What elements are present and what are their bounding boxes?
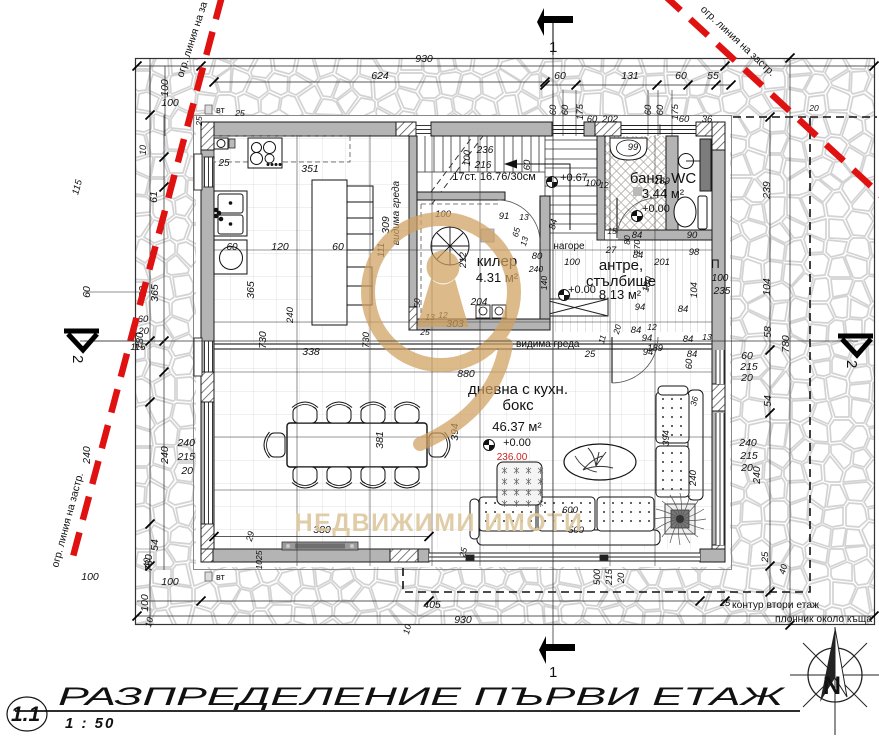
svg-text:240: 240 xyxy=(751,466,763,485)
svg-text:60: 60 xyxy=(643,104,654,115)
svg-text:60: 60 xyxy=(522,159,533,170)
svg-text:2: 2 xyxy=(843,360,860,368)
svg-text:17ст. 16.76/30см: 17ст. 16.76/30см xyxy=(452,171,536,183)
svg-text:20: 20 xyxy=(740,372,753,384)
svg-text:100: 100 xyxy=(462,149,473,166)
svg-text:60: 60 xyxy=(81,286,93,298)
svg-text:212: 212 xyxy=(458,251,469,269)
svg-text:13: 13 xyxy=(519,212,529,222)
svg-text:36: 36 xyxy=(702,114,713,125)
svg-text:500: 500 xyxy=(592,568,603,585)
svg-text:1: 1 xyxy=(549,39,557,56)
svg-text:100: 100 xyxy=(81,571,99,583)
svg-text:215: 215 xyxy=(176,451,195,463)
svg-text:контур втори етаж: контур втори етаж xyxy=(732,600,819,611)
svg-text:624: 624 xyxy=(371,70,389,82)
svg-text:405: 405 xyxy=(423,599,441,611)
svg-text:25: 25 xyxy=(419,327,430,337)
svg-text:236: 236 xyxy=(476,145,494,156)
svg-text:394: 394 xyxy=(661,430,672,446)
svg-text:365: 365 xyxy=(245,281,257,299)
svg-text:54: 54 xyxy=(149,539,161,551)
svg-text:N: N xyxy=(823,672,841,700)
svg-text:13: 13 xyxy=(702,332,712,342)
svg-text:215: 215 xyxy=(739,450,758,462)
svg-text:104: 104 xyxy=(689,282,700,298)
svg-text:365: 365 xyxy=(149,284,161,302)
svg-text:60: 60 xyxy=(684,358,695,369)
svg-text:730: 730 xyxy=(361,331,372,348)
svg-text:100: 100 xyxy=(564,257,581,268)
svg-text:131: 131 xyxy=(621,70,639,82)
svg-text:240: 240 xyxy=(81,446,93,465)
svg-text:240: 240 xyxy=(159,446,171,465)
svg-text:140: 140 xyxy=(539,276,549,290)
svg-text:55: 55 xyxy=(707,70,719,82)
svg-text:90: 90 xyxy=(687,230,698,241)
svg-text:100: 100 xyxy=(161,576,179,588)
svg-text:61: 61 xyxy=(148,191,160,203)
svg-text:1 : 50: 1 : 50 xyxy=(65,715,115,732)
svg-text:60: 60 xyxy=(655,104,666,115)
svg-text:60: 60 xyxy=(548,104,559,115)
svg-text:12: 12 xyxy=(599,180,609,190)
svg-text:60: 60 xyxy=(332,241,344,253)
svg-text:НЕДВИЖИМИ ИМОТИ: НЕДВИЖИМИ ИМОТИ xyxy=(295,509,584,537)
svg-text:202: 202 xyxy=(601,114,619,125)
svg-text:вт: вт xyxy=(216,572,225,582)
svg-text:240: 240 xyxy=(528,264,543,274)
svg-text:+0.00: +0.00 xyxy=(642,203,670,215)
svg-text:240: 240 xyxy=(688,469,699,487)
svg-text:25: 25 xyxy=(760,551,771,563)
svg-text:1.1: 1.1 xyxy=(11,703,40,726)
svg-text:25: 25 xyxy=(719,598,731,609)
svg-text:60: 60 xyxy=(675,70,687,82)
svg-text:91: 91 xyxy=(499,211,510,222)
svg-text:20: 20 xyxy=(180,465,193,477)
svg-text:+0.67: +0.67 xyxy=(560,172,588,184)
svg-text:2: 2 xyxy=(69,355,86,363)
svg-text:215: 215 xyxy=(604,568,615,586)
svg-text:99: 99 xyxy=(628,142,639,153)
svg-text:381: 381 xyxy=(374,431,386,449)
svg-text:25: 25 xyxy=(234,108,245,118)
svg-text:84: 84 xyxy=(678,304,689,315)
svg-text:РАЗПРЕДЕЛЕНИЕ ПЪРВИ ЕТАЖ: РАЗПРЕДЕЛЕНИЕ ПЪРВИ ЕТАЖ xyxy=(58,683,787,711)
svg-text:84: 84 xyxy=(631,325,642,336)
svg-text:201: 201 xyxy=(653,257,670,268)
svg-text:84: 84 xyxy=(683,334,694,345)
svg-text:100: 100 xyxy=(712,273,729,284)
svg-text:84: 84 xyxy=(687,349,698,360)
svg-text:нагоре: нагоре xyxy=(553,241,585,252)
svg-text:58: 58 xyxy=(762,326,774,338)
svg-text:100: 100 xyxy=(139,594,151,612)
svg-text:54: 54 xyxy=(762,395,774,407)
svg-text:60: 60 xyxy=(679,114,690,125)
svg-text:60: 60 xyxy=(138,314,149,325)
svg-text:1: 1 xyxy=(549,664,557,681)
svg-text:240: 240 xyxy=(176,437,195,449)
svg-text:84: 84 xyxy=(632,230,643,241)
svg-text:8.13 м²: 8.13 м² xyxy=(599,287,642,302)
svg-text:П: П xyxy=(711,257,720,271)
svg-text:240: 240 xyxy=(285,306,296,324)
svg-text:15: 15 xyxy=(607,226,617,236)
svg-text:80: 80 xyxy=(622,235,632,245)
svg-text:вт: вт xyxy=(216,105,225,115)
svg-text:338: 338 xyxy=(302,346,320,358)
svg-text:104: 104 xyxy=(761,278,773,296)
svg-text:50: 50 xyxy=(412,298,422,308)
svg-text:235: 235 xyxy=(713,286,731,297)
svg-text:930: 930 xyxy=(415,53,433,65)
svg-text:25: 25 xyxy=(217,158,230,169)
svg-text:216: 216 xyxy=(474,160,492,171)
svg-text:120: 120 xyxy=(271,241,289,253)
svg-text:60: 60 xyxy=(587,114,598,125)
svg-text:351: 351 xyxy=(301,163,319,175)
svg-text:204: 204 xyxy=(470,297,488,308)
svg-text:+0.00: +0.00 xyxy=(503,437,531,449)
svg-text:100: 100 xyxy=(161,97,179,109)
svg-text:бокс: бокс xyxy=(502,397,534,414)
svg-text:+0.00: +0.00 xyxy=(568,284,596,296)
svg-text:60: 60 xyxy=(226,242,238,253)
svg-text:189: 189 xyxy=(654,176,671,187)
svg-text:189: 189 xyxy=(647,343,664,354)
svg-text:94: 94 xyxy=(635,302,646,313)
svg-text:10: 10 xyxy=(138,145,148,155)
svg-text:175: 175 xyxy=(575,103,586,120)
svg-text:12: 12 xyxy=(647,322,657,332)
svg-text:270: 270 xyxy=(632,240,642,255)
svg-text:20: 20 xyxy=(616,572,627,584)
svg-text:236.00: 236.00 xyxy=(497,452,528,463)
svg-text:98: 98 xyxy=(689,247,700,258)
svg-text:60: 60 xyxy=(554,70,566,82)
svg-text:60: 60 xyxy=(560,104,571,115)
svg-text:25: 25 xyxy=(194,116,204,127)
svg-text:239: 239 xyxy=(761,181,773,200)
svg-text:27: 27 xyxy=(605,245,617,256)
svg-text:880: 880 xyxy=(457,368,475,380)
svg-text:100: 100 xyxy=(159,79,171,97)
svg-text:80: 80 xyxy=(532,251,543,262)
svg-text:730: 730 xyxy=(257,331,269,349)
svg-text:780: 780 xyxy=(780,335,792,353)
svg-text:930: 930 xyxy=(454,614,472,626)
svg-text:780: 780 xyxy=(143,554,155,572)
svg-text:240: 240 xyxy=(738,437,757,449)
svg-text:1025: 1025 xyxy=(254,550,264,569)
svg-text:20: 20 xyxy=(808,103,819,113)
svg-text:25: 25 xyxy=(584,349,596,360)
svg-text:46.37 м²: 46.37 м² xyxy=(492,419,542,434)
svg-text:плочник около къща: плочник около къща xyxy=(775,614,872,625)
svg-text:3.44 м²: 3.44 м² xyxy=(642,186,685,201)
